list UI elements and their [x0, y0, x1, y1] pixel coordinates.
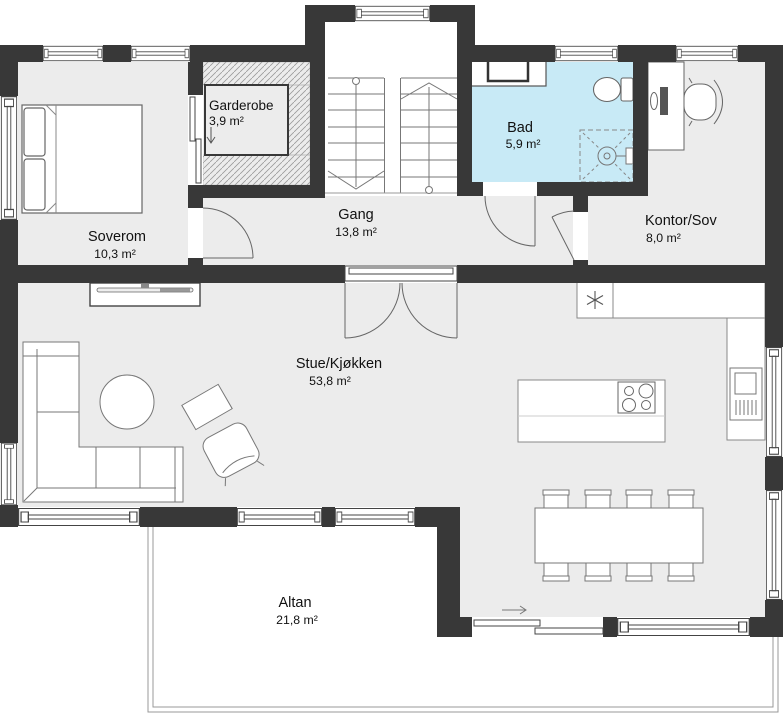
coffee-table [100, 375, 154, 429]
tv-stand [141, 284, 149, 288]
window [131, 46, 189, 60]
window [43, 46, 102, 60]
stairwell-floor [325, 22, 457, 196]
desk-lamp [651, 93, 658, 110]
sink-basin [488, 60, 528, 81]
wardrobe-sliding-door [188, 95, 203, 185]
window [766, 491, 781, 600]
room-area-gang: 13,8 m² [335, 225, 377, 239]
terrace-sliding-door [472, 617, 603, 637]
pillow [24, 108, 45, 156]
room-area-garderobe: 3,9 m² [209, 114, 244, 128]
room-label-soverom: Soverom [88, 229, 146, 245]
room-label-stue: Stue/Kjøkken [296, 356, 382, 372]
window [1, 443, 16, 504]
floor-plan-svg: Soverom 10,3 m² Garderobe 3,9 m² Gang 13… [0, 0, 783, 720]
window [335, 509, 414, 526]
room-label-kontor: Kontor/Sov [645, 213, 717, 229]
room-label-bad: Bad [507, 120, 533, 136]
window [676, 46, 737, 60]
bed [22, 105, 142, 213]
room-label-garderobe: Garderobe [209, 98, 274, 113]
room-area-bad: 5,9 m² [506, 137, 541, 151]
window [766, 348, 781, 457]
room-area-kontor: 8,0 m² [646, 231, 681, 245]
toilet [594, 78, 634, 102]
floor-plan: Soverom 10,3 m² Garderobe 3,9 m² Gang 13… [0, 0, 783, 720]
monitor [660, 87, 668, 115]
dishwasher [730, 368, 762, 420]
window [237, 509, 321, 526]
dining-table [535, 508, 703, 563]
room-area-altan: 21,8 m² [276, 613, 318, 627]
room-area-soverom: 10,3 m² [94, 247, 136, 261]
window [19, 509, 140, 526]
shower-fixture [626, 148, 633, 164]
window [555, 46, 617, 60]
tv-bench [90, 283, 200, 306]
window [618, 619, 750, 636]
tv-screen [160, 289, 190, 292]
window [355, 6, 429, 20]
room-label-gang: Gang [338, 207, 373, 223]
kitchen-island [518, 380, 665, 442]
room-label-altan: Altan [278, 595, 311, 611]
window [1, 97, 16, 220]
pillow [24, 159, 45, 210]
room-area-stue: 53,8 m² [309, 374, 351, 388]
office-desk [648, 62, 684, 150]
